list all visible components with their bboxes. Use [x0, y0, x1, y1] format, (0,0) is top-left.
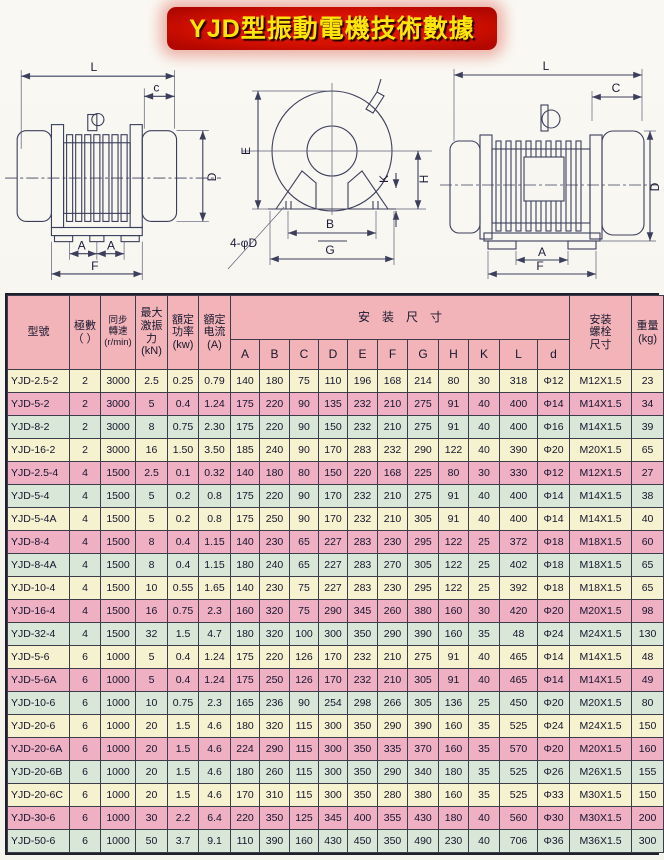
- cell-speed: 1500: [101, 531, 136, 554]
- cell-poles: 6: [70, 807, 101, 830]
- cell-dim-A: 140: [231, 370, 260, 393]
- cell-dim-F: 266: [378, 692, 408, 715]
- cell-dim-D: 290: [319, 600, 348, 623]
- cell-dim-B: 320: [260, 715, 290, 738]
- cell-power: 0.4: [168, 554, 199, 577]
- cell-dim-D: 150: [319, 416, 348, 439]
- cell-poles: 2: [70, 370, 101, 393]
- cell-weight: 300: [632, 830, 664, 853]
- cell-power: 2.2: [168, 807, 199, 830]
- cell-dim-L: 318: [500, 370, 538, 393]
- cell-dim-B: 220: [260, 416, 290, 439]
- cell-power: 0.1: [168, 462, 199, 485]
- cell-power: 1.50: [168, 439, 199, 462]
- cell-force: 8: [136, 554, 168, 577]
- cell-model: YJD-5-6: [8, 646, 70, 669]
- cell-weight: 155: [632, 761, 664, 784]
- cell-dim-H: 160: [439, 738, 469, 761]
- cell-model: YJD-5-4A: [8, 508, 70, 531]
- cell-force: 5: [136, 393, 168, 416]
- cell-force: 5: [136, 646, 168, 669]
- cell-speed: 1000: [101, 761, 136, 784]
- table-row: YJD-8-22300080.752.301752209015023221027…: [8, 416, 664, 439]
- cell-dim-L: 392: [500, 577, 538, 600]
- cell-weight: 39: [632, 416, 664, 439]
- cell-dim-A: 160: [231, 600, 260, 623]
- cell-dim-L: 560: [500, 807, 538, 830]
- cell-dim-d: Φ20: [538, 692, 570, 715]
- cell-dim-B: 240: [260, 554, 290, 577]
- cell-bolt: M14X1.5: [570, 485, 632, 508]
- table-row: YJD-20-661000201.54.61803201153003502903…: [8, 715, 664, 738]
- cell-dim-A: 180: [231, 761, 260, 784]
- cell-power: 1.5: [168, 623, 199, 646]
- cell-dim-B: 250: [260, 669, 290, 692]
- cell-dim-L: 400: [500, 393, 538, 416]
- cell-power: 1.5: [168, 715, 199, 738]
- cell-dim-D: 170: [319, 485, 348, 508]
- cell-dim-E: 220: [348, 462, 378, 485]
- cell-dim-B: 230: [260, 531, 290, 554]
- cell-speed: 1500: [101, 600, 136, 623]
- cell-bolt: M14X1.5: [570, 416, 632, 439]
- cell-power: 1.5: [168, 738, 199, 761]
- cell-dim-d: Φ26: [538, 761, 570, 784]
- cell-dim-A: 175: [231, 485, 260, 508]
- cell-dim-K: 40: [469, 485, 500, 508]
- cell-dim-H: 122: [439, 531, 469, 554]
- dim-label-K: K: [377, 175, 391, 183]
- table-row: YJD-32-441500321.54.71803201003003502903…: [8, 623, 664, 646]
- cell-dim-F: 210: [378, 485, 408, 508]
- cell-dim-L: 402: [500, 554, 538, 577]
- cell-model: YJD-20-6C: [8, 784, 70, 807]
- cell-dim-d: Φ18: [538, 577, 570, 600]
- cell-speed: 1000: [101, 669, 136, 692]
- cell-dim-d: Φ12: [538, 462, 570, 485]
- cell-dim-H: 80: [439, 370, 469, 393]
- cell-dim-d: Φ24: [538, 623, 570, 646]
- cell-dim-d: Φ20: [538, 600, 570, 623]
- cell-force: 32: [136, 623, 168, 646]
- dim-label-A3: A: [538, 245, 546, 259]
- cell-weight: 80: [632, 692, 664, 715]
- col-header-bolt: 安装 螺栓 尺寸: [570, 296, 632, 370]
- table-row: YJD-50-661000503.79.11103901604304503504…: [8, 830, 664, 853]
- col-header-dim-D: D: [319, 340, 348, 370]
- cell-dim-K: 35: [469, 738, 500, 761]
- col-header-dim-d: d: [538, 340, 570, 370]
- cell-dim-A: 165: [231, 692, 260, 715]
- cell-dim-B: 390: [260, 830, 290, 853]
- cell-poles: 6: [70, 692, 101, 715]
- dim-label-D2: D: [648, 182, 662, 191]
- motor-side-view2-drawing: L C D: [438, 56, 664, 284]
- cell-dim-C: 126: [290, 669, 319, 692]
- cell-dim-B: 320: [260, 623, 290, 646]
- cell-dim-A: 180: [231, 623, 260, 646]
- cell-dim-D: 170: [319, 439, 348, 462]
- cell-dim-d: Φ36: [538, 830, 570, 853]
- cell-force: 50: [136, 830, 168, 853]
- cell-dim-A: 110: [231, 830, 260, 853]
- cell-dim-d: Φ18: [538, 531, 570, 554]
- cell-dim-E: 400: [348, 807, 378, 830]
- cell-dim-C: 80: [290, 462, 319, 485]
- cell-dim-H: 180: [439, 761, 469, 784]
- cell-speed: 1500: [101, 485, 136, 508]
- cell-dim-A: 175: [231, 669, 260, 692]
- cell-dim-D: 227: [319, 531, 348, 554]
- cell-dim-K: 35: [469, 761, 500, 784]
- cell-dim-d: Φ12: [538, 370, 570, 393]
- cell-power: 0.75: [168, 416, 199, 439]
- cell-model: YJD-5-4: [8, 485, 70, 508]
- cell-dim-A: 140: [231, 531, 260, 554]
- col-header-dim-H: H: [439, 340, 469, 370]
- cell-dim-G: 305: [408, 554, 439, 577]
- cell-speed: 1000: [101, 784, 136, 807]
- cell-current: 4.6: [199, 738, 231, 761]
- cell-dim-C: 75: [290, 370, 319, 393]
- cell-dim-G: 380: [408, 600, 439, 623]
- cell-force: 20: [136, 761, 168, 784]
- cell-speed: 3000: [101, 439, 136, 462]
- cell-dim-C: 125: [290, 807, 319, 830]
- cell-dim-C: 65: [290, 554, 319, 577]
- cell-speed: 1500: [101, 577, 136, 600]
- cell-dim-E: 196: [348, 370, 378, 393]
- cell-force: 20: [136, 715, 168, 738]
- cell-dim-L: 570: [500, 738, 538, 761]
- cell-dim-K: 40: [469, 830, 500, 853]
- table-row: YJD-20-6B61000201.54.6180260115300350290…: [8, 761, 664, 784]
- cell-power: 0.4: [168, 646, 199, 669]
- cell-power: 0.4: [168, 393, 199, 416]
- cell-dim-F: 335: [378, 738, 408, 761]
- cell-force: 10: [136, 577, 168, 600]
- cell-bolt: M30X1.5: [570, 784, 632, 807]
- cell-dim-D: 254: [319, 692, 348, 715]
- cell-dim-D: 110: [319, 370, 348, 393]
- cell-dim-B: 220: [260, 393, 290, 416]
- cell-power: 3.7: [168, 830, 199, 853]
- cell-dim-K: 35: [469, 623, 500, 646]
- cell-power: 0.2: [168, 485, 199, 508]
- cell-bolt: M14X1.5: [570, 508, 632, 531]
- cell-force: 5: [136, 485, 168, 508]
- cell-dim-K: 40: [469, 439, 500, 462]
- cell-model: YJD-2.5-2: [8, 370, 70, 393]
- cell-model: YJD-50-6: [8, 830, 70, 853]
- cell-poles: 2: [70, 439, 101, 462]
- cell-dim-C: 100: [290, 623, 319, 646]
- dim-label-F: F: [91, 259, 98, 273]
- cell-dim-d: Φ24: [538, 715, 570, 738]
- cell-dim-C: 115: [290, 715, 319, 738]
- cell-force: 2.5: [136, 370, 168, 393]
- cell-current: 0.8: [199, 508, 231, 531]
- cell-dim-H: 91: [439, 485, 469, 508]
- cell-speed: 1000: [101, 738, 136, 761]
- cell-dim-E: 232: [348, 669, 378, 692]
- cell-dim-E: 232: [348, 646, 378, 669]
- col-header-force: 最大 激振 力 (kN): [136, 296, 168, 370]
- cell-dim-K: 40: [469, 646, 500, 669]
- cell-dim-C: 90: [290, 485, 319, 508]
- cell-bolt: M14X1.5: [570, 393, 632, 416]
- cell-weight: 150: [632, 784, 664, 807]
- cell-dim-D: 345: [319, 807, 348, 830]
- cell-dim-L: 330: [500, 462, 538, 485]
- cell-dim-L: 400: [500, 508, 538, 531]
- cell-dim-L: 372: [500, 531, 538, 554]
- cell-speed: 1500: [101, 554, 136, 577]
- cell-model: YJD-5-2: [8, 393, 70, 416]
- cell-dim-d: Φ14: [538, 393, 570, 416]
- table-row: YJD-5-66100050.41.2417522012617023221027…: [8, 646, 664, 669]
- cell-dim-C: 160: [290, 830, 319, 853]
- cell-dim-d: Φ20: [538, 738, 570, 761]
- cell-dim-C: 90: [290, 439, 319, 462]
- cell-dim-C: 90: [290, 393, 319, 416]
- col-header-install-dims: 安装尺寸: [231, 296, 570, 340]
- cell-bolt: M18X1.5: [570, 531, 632, 554]
- cell-dim-F: 280: [378, 784, 408, 807]
- cell-dim-H: 91: [439, 393, 469, 416]
- cell-current: 0.79: [199, 370, 231, 393]
- cell-current: 1.24: [199, 646, 231, 669]
- cell-dim-F: 232: [378, 439, 408, 462]
- cell-dim-H: 230: [439, 830, 469, 853]
- cell-current: 4.6: [199, 784, 231, 807]
- page-header: YJD型振動電機技術數據: [0, 0, 664, 50]
- cell-dim-L: 400: [500, 485, 538, 508]
- table-row: YJD-5-22300050.41.2417522090135232210275…: [8, 393, 664, 416]
- cell-dim-E: 298: [348, 692, 378, 715]
- cell-dim-A: 224: [231, 738, 260, 761]
- cell-dim-A: 175: [231, 646, 260, 669]
- cell-dim-D: 170: [319, 646, 348, 669]
- cell-model: YJD-10-4: [8, 577, 70, 600]
- motor-end-body-icon: [242, 79, 432, 215]
- cell-bolt: M12X1.5: [570, 462, 632, 485]
- cell-dim-H: 91: [439, 646, 469, 669]
- cell-dim-K: 40: [469, 393, 500, 416]
- cell-current: 6.4: [199, 807, 231, 830]
- table-row: YJD-2.5-4415002.50.10.321401808015022016…: [8, 462, 664, 485]
- cell-model: YJD-2.5-4: [8, 462, 70, 485]
- cell-force: 20: [136, 784, 168, 807]
- cell-dim-E: 232: [348, 416, 378, 439]
- cell-weight: 98: [632, 600, 664, 623]
- dim-label-C2: C: [612, 81, 621, 95]
- cell-dim-F: 210: [378, 393, 408, 416]
- motor-side-view-drawing: L c D: [0, 56, 226, 284]
- cell-dim-G: 290: [408, 439, 439, 462]
- cell-weight: 49: [632, 669, 664, 692]
- cell-dim-F: 355: [378, 807, 408, 830]
- cell-dim-H: 91: [439, 508, 469, 531]
- table-row: YJD-10-661000100.752.3165236902542982663…: [8, 692, 664, 715]
- cell-dim-G: 380: [408, 784, 439, 807]
- cell-bolt: M12X1.5: [570, 370, 632, 393]
- cell-power: 0.25: [168, 370, 199, 393]
- cell-speed: 3000: [101, 416, 136, 439]
- col-header-dim-B: B: [260, 340, 290, 370]
- cell-dim-G: 225: [408, 462, 439, 485]
- table-row: YJD-20-6C61000201.54.6170310115300350280…: [8, 784, 664, 807]
- cell-weight: 65: [632, 554, 664, 577]
- cell-dim-D: 300: [319, 738, 348, 761]
- cell-dim-L: 525: [500, 784, 538, 807]
- cell-power: 0.75: [168, 600, 199, 623]
- cell-speed: 3000: [101, 393, 136, 416]
- cell-dim-H: 160: [439, 784, 469, 807]
- cell-dim-B: 240: [260, 439, 290, 462]
- cell-speed: 1500: [101, 462, 136, 485]
- cell-dim-D: 170: [319, 669, 348, 692]
- cell-dim-D: 300: [319, 761, 348, 784]
- cell-dim-d: Φ16: [538, 416, 570, 439]
- cell-dim-G: 275: [408, 416, 439, 439]
- cell-dim-H: 160: [439, 623, 469, 646]
- cell-current: 2.3: [199, 600, 231, 623]
- cell-dim-L: 525: [500, 761, 538, 784]
- cell-speed: 1500: [101, 508, 136, 531]
- cell-dim-G: 305: [408, 508, 439, 531]
- cell-bolt: M20X1.5: [570, 600, 632, 623]
- cell-force: 10: [136, 692, 168, 715]
- cell-dim-d: Φ14: [538, 646, 570, 669]
- motor-end-view-drawing: E H K B G 4-φD: [226, 56, 438, 284]
- cell-speed: 1000: [101, 807, 136, 830]
- cell-dim-K: 25: [469, 692, 500, 715]
- cell-dim-D: 300: [319, 784, 348, 807]
- cell-force: 20: [136, 738, 168, 761]
- cell-dim-H: 122: [439, 439, 469, 462]
- cell-dim-F: 230: [378, 531, 408, 554]
- table-row: YJD-30-661000302.26.42203501253454003554…: [8, 807, 664, 830]
- col-header-poles: 極數 （ ）: [70, 296, 101, 370]
- cell-dim-A: 180: [231, 554, 260, 577]
- cell-dim-d: Φ33: [538, 784, 570, 807]
- col-header-power: 額定 功率 (kw): [168, 296, 199, 370]
- cell-dim-F: 210: [378, 416, 408, 439]
- cell-weight: 27: [632, 462, 664, 485]
- cell-current: 0.8: [199, 485, 231, 508]
- cell-dim-E: 283: [348, 439, 378, 462]
- table-row: YJD-16-223000161.503.5018524090170283232…: [8, 439, 664, 462]
- cell-current: 4.6: [199, 715, 231, 738]
- cell-dim-H: 136: [439, 692, 469, 715]
- cell-bolt: M20X1.5: [570, 439, 632, 462]
- table-row: YJD-8-44150080.41.1514023065227283230295…: [8, 531, 664, 554]
- cell-dim-F: 168: [378, 462, 408, 485]
- cell-dim-d: Φ14: [538, 485, 570, 508]
- cell-dim-E: 350: [348, 715, 378, 738]
- cell-dim-d: Φ20: [538, 439, 570, 462]
- cell-dim-K: 30: [469, 462, 500, 485]
- cell-dim-A: 140: [231, 462, 260, 485]
- cell-dim-F: 290: [378, 761, 408, 784]
- cell-force: 2.5: [136, 462, 168, 485]
- cell-dim-F: 290: [378, 715, 408, 738]
- motor-body-icon: [17, 114, 176, 242]
- cell-dim-C: 75: [290, 600, 319, 623]
- cell-dim-A: 220: [231, 807, 260, 830]
- col-header-dim-C: C: [290, 340, 319, 370]
- cell-poles: 4: [70, 623, 101, 646]
- cell-bolt: M20X1.5: [570, 692, 632, 715]
- cell-weight: 48: [632, 646, 664, 669]
- cell-current: 0.32: [199, 462, 231, 485]
- cell-dim-D: 150: [319, 462, 348, 485]
- cell-dim-L: 465: [500, 669, 538, 692]
- cell-poles: 4: [70, 600, 101, 623]
- cell-force: 5: [136, 508, 168, 531]
- cell-dim-d: Φ30: [538, 807, 570, 830]
- cell-poles: 6: [70, 646, 101, 669]
- table-row: YJD-20-6A61000201.54.6224290115300350335…: [8, 738, 664, 761]
- cell-dim-D: 227: [319, 577, 348, 600]
- cell-speed: 3000: [101, 370, 136, 393]
- cell-dim-A: 175: [231, 508, 260, 531]
- table-row: YJD-5-4A4150050.20.817525090170232210305…: [8, 508, 664, 531]
- cell-dim-C: 126: [290, 646, 319, 669]
- cell-dim-L: 465: [500, 646, 538, 669]
- dim-label-c: c: [153, 80, 159, 94]
- cell-dim-C: 115: [290, 784, 319, 807]
- cell-dim-G: 390: [408, 623, 439, 646]
- cell-poles: 4: [70, 508, 101, 531]
- cell-model: YJD-32-4: [8, 623, 70, 646]
- cell-dim-D: 227: [319, 554, 348, 577]
- cell-dim-A: 180: [231, 715, 260, 738]
- cell-dim-H: 80: [439, 462, 469, 485]
- cell-weight: 23: [632, 370, 664, 393]
- cell-dim-F: 230: [378, 577, 408, 600]
- col-header-model: 型號: [8, 296, 70, 370]
- cell-dim-G: 275: [408, 393, 439, 416]
- cell-power: 0.55: [168, 577, 199, 600]
- cell-dim-L: 450: [500, 692, 538, 715]
- cell-force: 16: [136, 439, 168, 462]
- cell-dim-E: 350: [348, 761, 378, 784]
- dim-label-A1: A: [78, 239, 87, 253]
- cell-dim-K: 40: [469, 416, 500, 439]
- cell-dim-L: 420: [500, 600, 538, 623]
- cell-dim-K: 25: [469, 531, 500, 554]
- cell-dim-G: 295: [408, 577, 439, 600]
- cell-current: 1.24: [199, 669, 231, 692]
- cell-dim-A: 140: [231, 577, 260, 600]
- cell-dim-K: 35: [469, 715, 500, 738]
- cell-dim-E: 283: [348, 554, 378, 577]
- cell-speed: 1500: [101, 623, 136, 646]
- col-header-dim-L: L: [500, 340, 538, 370]
- cell-power: 0.2: [168, 508, 199, 531]
- cell-bolt: M18X1.5: [570, 554, 632, 577]
- cell-speed: 1000: [101, 715, 136, 738]
- cell-dim-A: 170: [231, 784, 260, 807]
- cell-dim-F: 260: [378, 600, 408, 623]
- dim-label-F2: F: [536, 259, 543, 273]
- cell-dim-F: 290: [378, 623, 408, 646]
- cell-dim-B: 290: [260, 738, 290, 761]
- cell-power: 0.4: [168, 531, 199, 554]
- cell-dim-B: 220: [260, 646, 290, 669]
